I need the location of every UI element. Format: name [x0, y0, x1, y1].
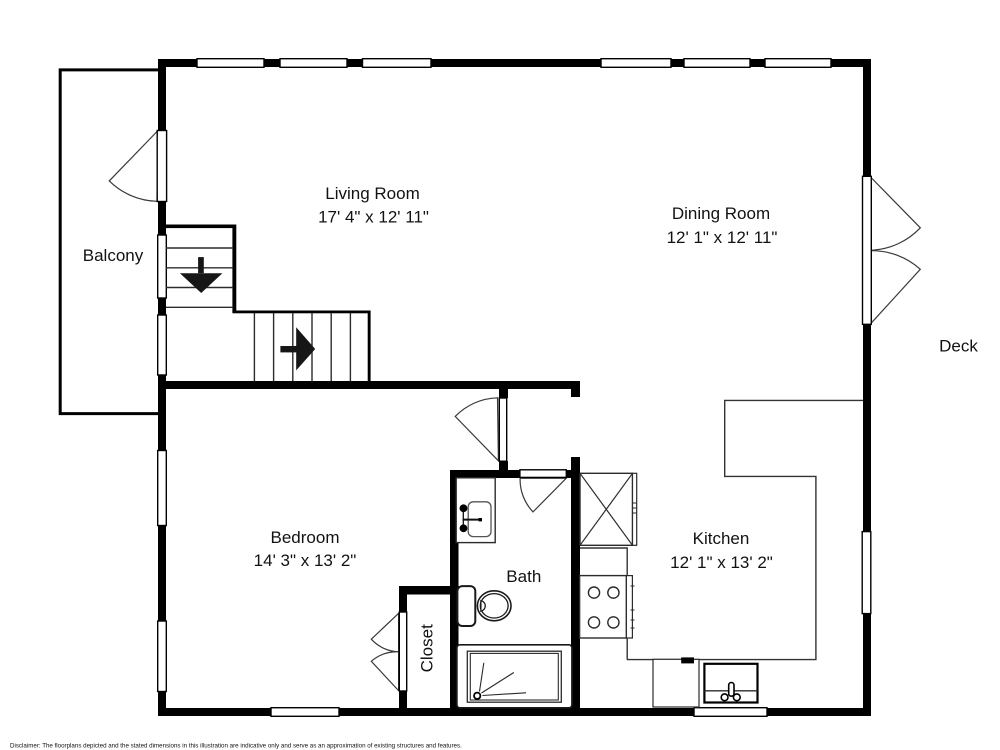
svg-text:Closet: Closet [418, 624, 437, 672]
svg-text:12' 1" x 12' 11": 12' 1" x 12' 11" [667, 228, 778, 247]
svg-text:12' 1" x 13' 2": 12' 1" x 13' 2" [670, 553, 773, 572]
svg-text:Disclaimer: The floorplans dep: Disclaimer: The floorplans depicted and … [10, 743, 462, 750]
svg-text:Kitchen: Kitchen [693, 529, 750, 548]
svg-text:Dining Room: Dining Room [672, 204, 770, 223]
svg-text:Bedroom: Bedroom [271, 528, 340, 547]
svg-text:Deck: Deck [939, 337, 978, 356]
svg-text:Balcony: Balcony [83, 246, 144, 265]
svg-text:17' 4" x 12' 11": 17' 4" x 12' 11" [318, 208, 429, 227]
svg-text:Bath: Bath [506, 567, 541, 586]
svg-text:Living Room: Living Room [325, 184, 420, 203]
svg-text:14' 3" x 13' 2": 14' 3" x 13' 2" [254, 551, 357, 570]
